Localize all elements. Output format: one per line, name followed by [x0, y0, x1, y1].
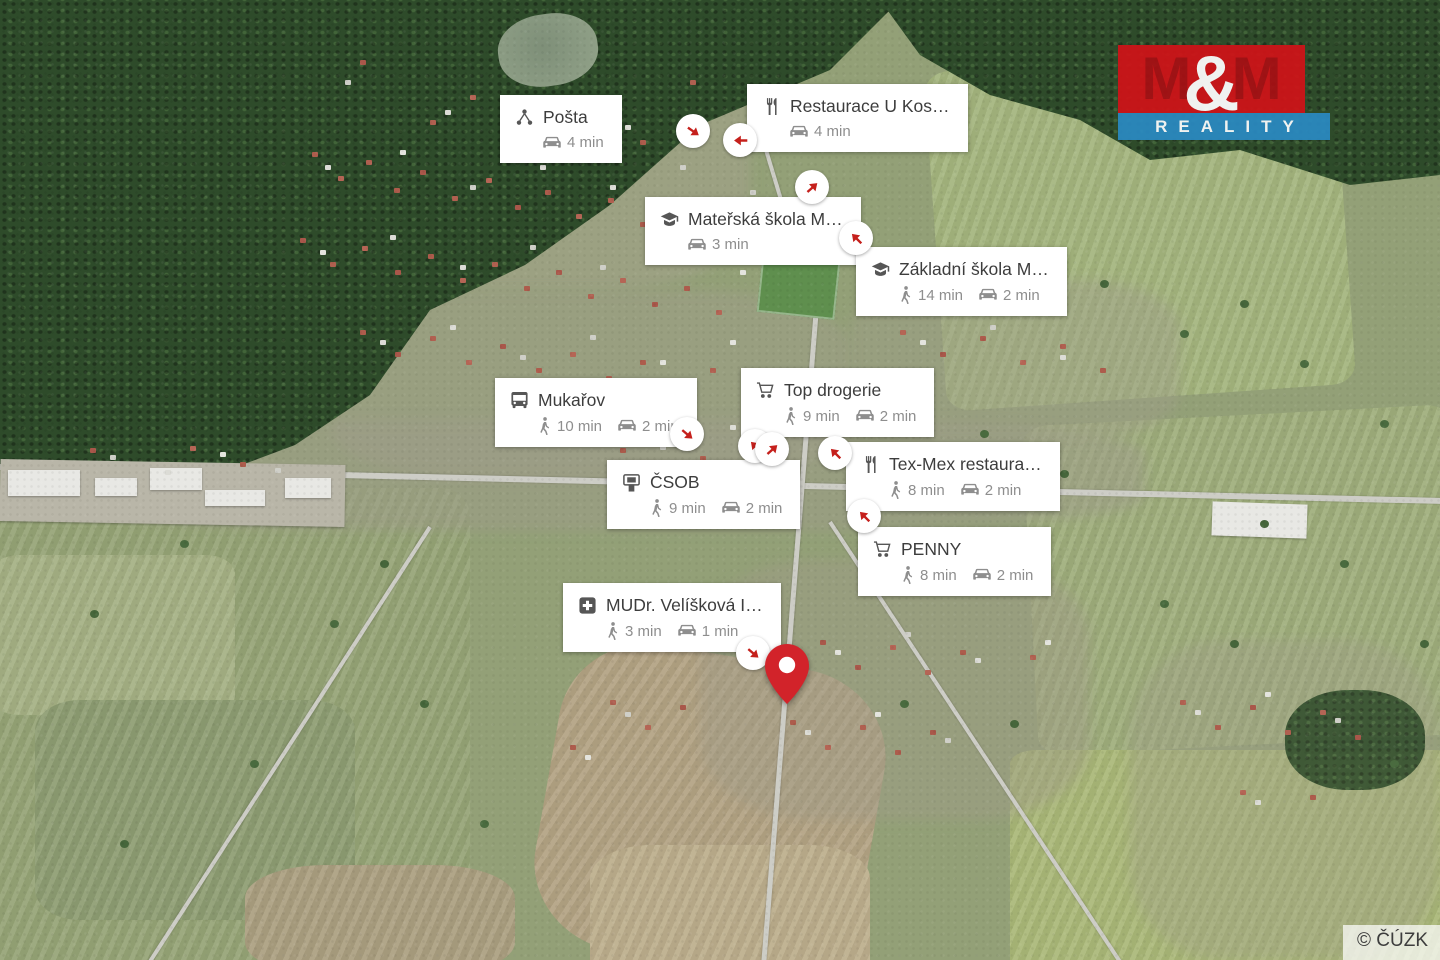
- drive-time-value: 2 min: [1003, 287, 1040, 304]
- drive-time: 2 min: [979, 287, 1040, 304]
- arrow-northwest-icon: [823, 441, 847, 465]
- poi-direction-marker[interactable]: [818, 436, 852, 470]
- poi-direction-marker[interactable]: [839, 221, 873, 255]
- drive-time-value: 4 min: [567, 134, 604, 151]
- drive-time-value: 2 min: [880, 408, 917, 425]
- drive-time: 2 min: [722, 500, 783, 517]
- car-icon: [979, 288, 997, 302]
- arrow-southeast-icon: [741, 641, 765, 665]
- bus-stop-icon: [510, 391, 529, 410]
- arrow-southeast-icon: [675, 422, 699, 446]
- building: [1211, 501, 1307, 538]
- walking-person-icon: [901, 566, 914, 584]
- drive-time: 2 min: [973, 567, 1034, 584]
- car-icon: [543, 136, 561, 150]
- school-icon: [871, 260, 890, 279]
- building: [285, 478, 331, 498]
- restaurant-icon: [762, 97, 781, 116]
- walking-person-icon: [606, 622, 619, 640]
- poi-direction-marker[interactable]: [676, 114, 710, 148]
- arrow-southeast-icon: [681, 119, 705, 143]
- arrow-northwest-icon: [852, 504, 876, 528]
- walk-time: 8 min: [889, 481, 945, 499]
- building: [150, 468, 202, 490]
- forest-area: [1285, 690, 1425, 790]
- walk-time-value: 14 min: [918, 287, 963, 304]
- poi-direction-marker[interactable]: [795, 170, 829, 204]
- poi-card-csob[interactable]: ČSOB 9 min 2 min: [607, 460, 800, 529]
- walking-person-icon: [650, 499, 663, 517]
- drive-time-value: 1 min: [702, 623, 739, 640]
- car-icon: [973, 568, 991, 582]
- car-icon: [722, 501, 740, 515]
- trees: [0, 0, 9, 8]
- poi-title: Mateřská škola M…: [688, 209, 843, 229]
- building: [8, 470, 80, 496]
- car-icon: [678, 624, 696, 638]
- poi-direction-marker[interactable]: [723, 123, 757, 157]
- poi-title: Pošta: [543, 107, 588, 127]
- building: [95, 478, 137, 496]
- drive-time: 3 min: [688, 236, 749, 253]
- poi-direction-marker[interactable]: [670, 417, 704, 451]
- poi-title: Restaurace U Kos…: [790, 96, 950, 116]
- walk-time-value: 8 min: [920, 567, 957, 584]
- walking-person-icon: [784, 407, 797, 425]
- poi-title: PENNY: [901, 539, 961, 559]
- walk-time-value: 3 min: [625, 623, 662, 640]
- walk-time-value: 10 min: [557, 418, 602, 435]
- mm-reality-logo: M & M REALITY: [1118, 45, 1330, 140]
- poi-card-mukarov[interactable]: Mukařov 10 min 2 min: [495, 378, 697, 447]
- logo-ampersand: &: [1183, 44, 1239, 122]
- drive-time-value: 2 min: [997, 567, 1034, 584]
- drive-time-value: 2 min: [985, 482, 1022, 499]
- walking-person-icon: [538, 417, 551, 435]
- map-attribution: © ČÚZK: [1343, 925, 1440, 960]
- arrow-west-icon: [732, 132, 749, 149]
- drive-time: 2 min: [961, 482, 1022, 499]
- poi-title: Tex-Mex restaura…: [889, 454, 1042, 474]
- field-area: [0, 555, 235, 715]
- building: [205, 490, 265, 506]
- car-icon: [688, 238, 706, 252]
- poi-card-zakladni-skola[interactable]: Základní škola M… 14 min 2 min: [856, 247, 1067, 316]
- village-area: [1130, 640, 1440, 960]
- drive-time: 1 min: [678, 623, 739, 640]
- poi-card-posta[interactable]: Pošta 4 min: [500, 95, 622, 163]
- walk-time: 9 min: [650, 499, 706, 517]
- walking-person-icon: [889, 481, 902, 499]
- post-office-icon: [515, 108, 534, 127]
- walk-time: 3 min: [606, 622, 662, 640]
- poi-title: Mukařov: [538, 390, 605, 410]
- property-pin[interactable]: [764, 643, 810, 705]
- drive-time: 2 min: [856, 408, 917, 425]
- poi-card-penny[interactable]: PENNY 8 min 2 min: [858, 527, 1051, 596]
- poi-title: Základní škola M…: [899, 259, 1049, 279]
- poi-title: ČSOB: [650, 472, 700, 492]
- walk-time: 8 min: [901, 566, 957, 584]
- walk-time-value: 9 min: [803, 408, 840, 425]
- drive-time: 4 min: [543, 134, 604, 151]
- poi-title: MUDr. Velíšková I…: [606, 595, 763, 615]
- arrow-northeast-icon: [800, 175, 824, 199]
- walk-time-value: 8 min: [908, 482, 945, 499]
- arrow-northeast-icon: [760, 437, 784, 461]
- arrow-northwest-icon: [844, 226, 868, 250]
- poi-card-tex-mex[interactable]: Tex-Mex restaura… 8 min 2 min: [846, 442, 1060, 511]
- shopping-cart-icon: [873, 540, 892, 559]
- satellite-map[interactable]: Pošta 4 min Restaurace U Kos… 4 min Mate…: [0, 0, 1440, 960]
- car-icon: [790, 125, 808, 139]
- field-area: [245, 865, 515, 960]
- drive-time-value: 4 min: [814, 123, 851, 140]
- walking-person-icon: [899, 286, 912, 304]
- restaurant-icon: [861, 455, 880, 474]
- walk-time: 14 min: [899, 286, 963, 304]
- school-icon: [660, 210, 679, 229]
- atm-icon: [622, 473, 641, 492]
- poi-direction-marker[interactable]: [847, 499, 881, 533]
- logo-mm-block: M & M: [1118, 45, 1305, 113]
- poi-direction-marker[interactable]: [755, 432, 789, 466]
- walk-time: 9 min: [784, 407, 840, 425]
- drive-time: 4 min: [790, 123, 851, 140]
- shopping-cart-icon: [756, 381, 775, 400]
- poi-title: Top drogerie: [784, 380, 881, 400]
- field-area: [590, 845, 870, 960]
- poi-card-materska-skola[interactable]: Mateřská škola M… 3 min: [645, 197, 861, 265]
- car-icon: [856, 409, 874, 423]
- car-icon: [961, 483, 979, 497]
- walk-time: 10 min: [538, 417, 602, 435]
- drive-time-value: 3 min: [712, 236, 749, 253]
- drive-time-value: 2 min: [746, 500, 783, 517]
- doctor-icon: [578, 596, 597, 615]
- walk-time-value: 9 min: [669, 500, 706, 517]
- car-icon: [618, 419, 636, 433]
- poi-card-top-drogerie[interactable]: Top drogerie 9 min 2 min: [741, 368, 934, 437]
- poi-card-restaurace-u-kos[interactable]: Restaurace U Kos… 4 min: [747, 84, 968, 152]
